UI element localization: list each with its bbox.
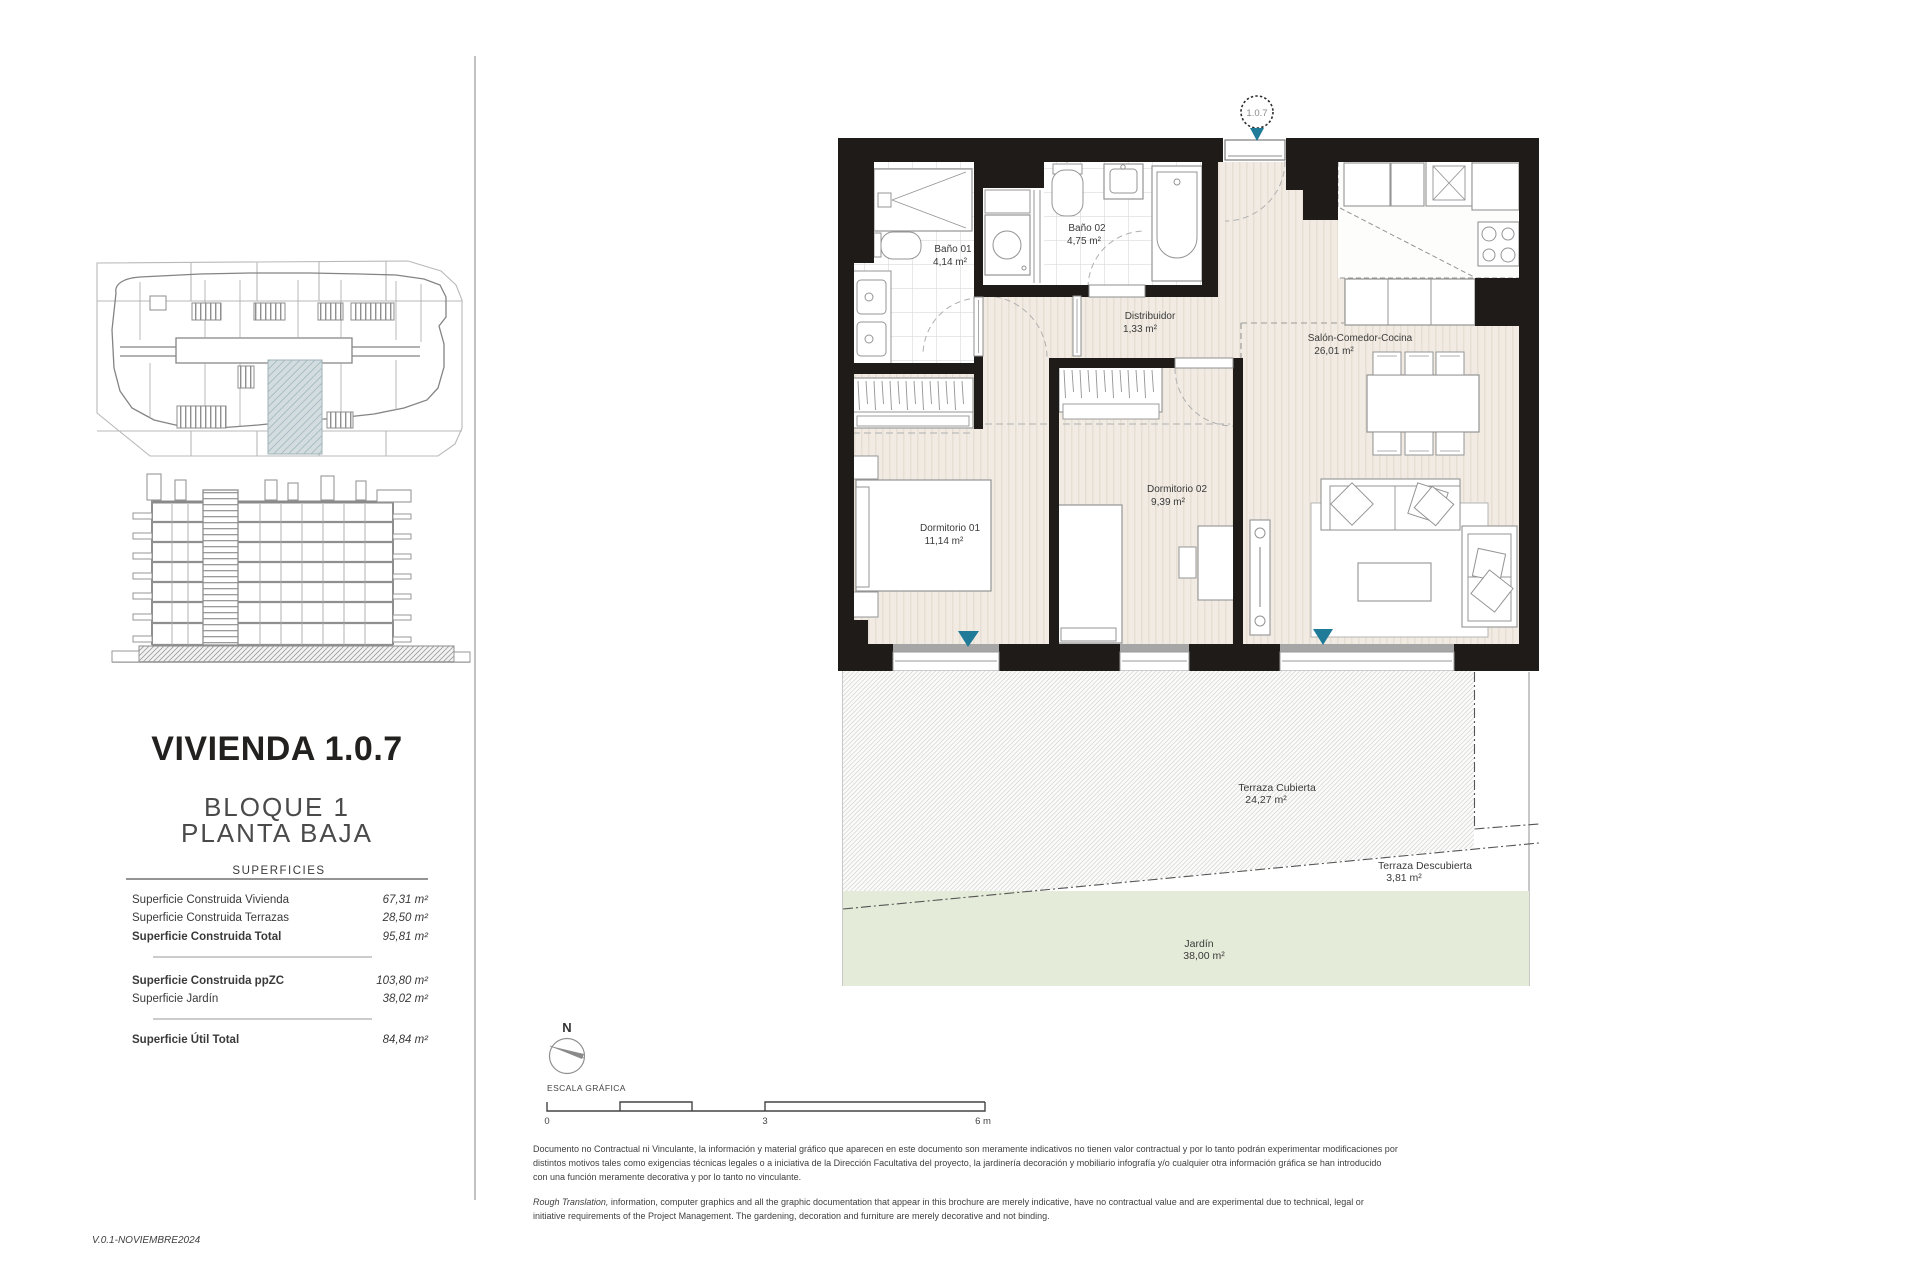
svg-text:Superficie Jardín: Superficie Jardín	[132, 993, 218, 1005]
svg-text:PLANTA BAJA: PLANTA BAJA	[181, 818, 373, 848]
svg-text:3,81 m²: 3,81 m²	[1386, 872, 1422, 884]
svg-text:84,84 m²: 84,84 m²	[383, 1034, 430, 1046]
svg-text:6 m: 6 m	[975, 1116, 991, 1127]
svg-text:103,80 m²: 103,80 m²	[376, 975, 429, 987]
svg-text:VIVIENDA 1.0.7: VIVIENDA 1.0.7	[151, 730, 402, 768]
svg-text:Superficie Construida Vivienda: Superficie Construida Vivienda	[132, 894, 290, 906]
svg-text:9,39 m²: 9,39 m²	[1151, 497, 1186, 508]
svg-text:distintos motivos tales como: distintos motivos tales como exigencias …	[533, 1158, 1381, 1168]
svg-text:Distribuidor: Distribuidor	[1125, 311, 1176, 322]
svg-text:V.0.1-NOVIEMBRE2024: V.0.1-NOVIEMBRE2024	[92, 1235, 201, 1246]
svg-text:Superficie Construida Total: Superficie Construida Total	[132, 931, 281, 943]
svg-text:Rough Translation, information: Rough Translation, information, computer…	[533, 1197, 1364, 1207]
svg-text:Dormitorio 02: Dormitorio 02	[1147, 484, 1207, 495]
svg-text:11,14 m²: 11,14 m²	[925, 536, 964, 547]
svg-text:ESCALA GRÁFICA: ESCALA GRÁFICA	[547, 1083, 626, 1093]
svg-text:1,33 m²: 1,33 m²	[1123, 324, 1158, 335]
svg-text:con una función meramente dec: con una función meramente decorativa y p…	[533, 1172, 801, 1182]
svg-text:3: 3	[762, 1116, 767, 1127]
svg-text:4,75 m²: 4,75 m²	[1067, 236, 1102, 247]
svg-text:Documento no Contractual ni Vi: Documento no Contractual ni Vinculante, …	[533, 1144, 1398, 1154]
svg-text:Dormitorio 01: Dormitorio 01	[920, 523, 980, 534]
svg-text:95,81 m²: 95,81 m²	[383, 931, 430, 943]
svg-text:38,02 m²: 38,02 m²	[383, 993, 430, 1005]
svg-text:Salón-Comedor-Cocina: Salón-Comedor-Cocina	[1308, 333, 1413, 344]
svg-text:Baño 02: Baño 02	[1068, 223, 1106, 234]
svg-text:4,14 m²: 4,14 m²	[933, 257, 968, 268]
svg-text:67,31 m²: 67,31 m²	[383, 894, 430, 906]
svg-text:Terraza Descubierta: Terraza Descubierta	[1378, 860, 1472, 872]
svg-text:initiative requirements of the: initiative requirements of the Project M…	[533, 1211, 1050, 1221]
svg-text:SUPERFICIES: SUPERFICIES	[232, 865, 325, 877]
svg-text:Superficie Construida ppZC: Superficie Construida ppZC	[132, 975, 284, 987]
svg-text:Superficie Construida Terrazas: Superficie Construida Terrazas	[132, 912, 289, 924]
svg-text:24,27 m²: 24,27 m²	[1245, 794, 1287, 806]
svg-text:0: 0	[544, 1116, 549, 1127]
svg-text:Baño 01: Baño 01	[934, 244, 972, 255]
svg-text:28,50 m²: 28,50 m²	[382, 912, 430, 924]
svg-text:26,01 m²: 26,01 m²	[1314, 346, 1354, 357]
svg-text:Jardín: Jardín	[1184, 938, 1213, 950]
svg-text:38,00 m²: 38,00 m²	[1183, 950, 1225, 962]
svg-text:Terraza Cubierta: Terraza Cubierta	[1238, 782, 1316, 794]
svg-text:1.0.7: 1.0.7	[1246, 108, 1267, 119]
svg-text:N: N	[562, 1020, 571, 1035]
svg-text:Superficie Útil Total: Superficie Útil Total	[132, 1033, 239, 1046]
